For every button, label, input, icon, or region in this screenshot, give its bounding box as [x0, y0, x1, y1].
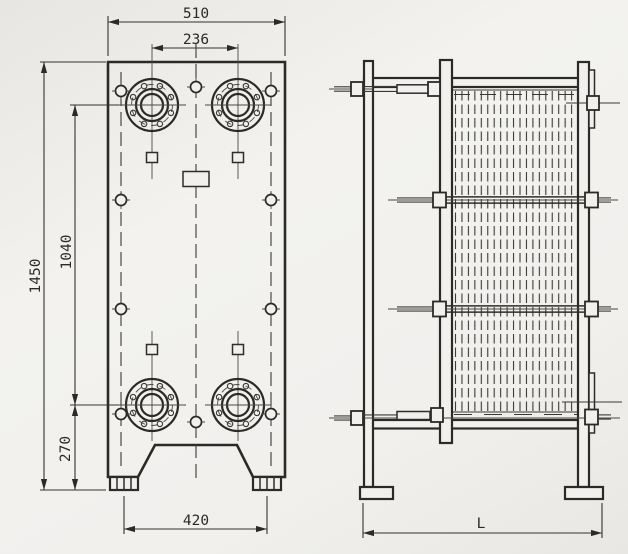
- plate-pack: [454, 91, 578, 414]
- dimension-port-spacing-horizontal: 236: [152, 32, 238, 51]
- dimension-label-236: 236: [183, 32, 209, 48]
- bolt-hole: [187, 78, 205, 96]
- lug-square: [147, 153, 158, 163]
- dimension-overall-height: 1450: [28, 62, 106, 490]
- bolt-hole: [112, 191, 130, 209]
- foot-front-right: [253, 477, 281, 490]
- dimension-label-420: 420: [183, 513, 209, 529]
- bolt-hole: [262, 300, 280, 318]
- dimension-label-1450: 1450: [28, 259, 44, 294]
- side-view: L: [329, 60, 622, 538]
- foot-side-right: [565, 487, 603, 499]
- dimension-label-1040: 1040: [59, 235, 75, 270]
- foot-side-left: [360, 487, 393, 499]
- bolt-hole: [262, 82, 280, 100]
- pressure-plate: [440, 60, 452, 443]
- front-view: 510 236 1450 1040: [28, 6, 285, 534]
- dimension-label-L: L: [477, 516, 486, 532]
- lug-square: [233, 345, 244, 355]
- dimension-foot-spacing: 420: [124, 496, 267, 534]
- bolt-hole: [262, 191, 280, 209]
- dimension-frame-length: L: [363, 503, 602, 538]
- drawing-canvas: 510 236 1450 1040: [0, 0, 628, 554]
- guide-bar: [364, 420, 578, 429]
- foot-front-left: [110, 477, 138, 490]
- nameplate: [183, 172, 209, 187]
- bolt-hole: [187, 413, 205, 431]
- lug-square: [233, 153, 244, 163]
- dimension-port-to-base: 270: [58, 405, 78, 490]
- dimension-label-270: 270: [58, 436, 74, 462]
- dimension-port-spacing-vertical: 1040: [59, 105, 78, 405]
- bolt-hole: [112, 300, 130, 318]
- dimension-label-510: 510: [183, 6, 209, 22]
- port-nut-top: [587, 96, 599, 110]
- bolt-hole: [112, 405, 130, 423]
- lug-square: [147, 345, 158, 355]
- support-column: [364, 61, 373, 487]
